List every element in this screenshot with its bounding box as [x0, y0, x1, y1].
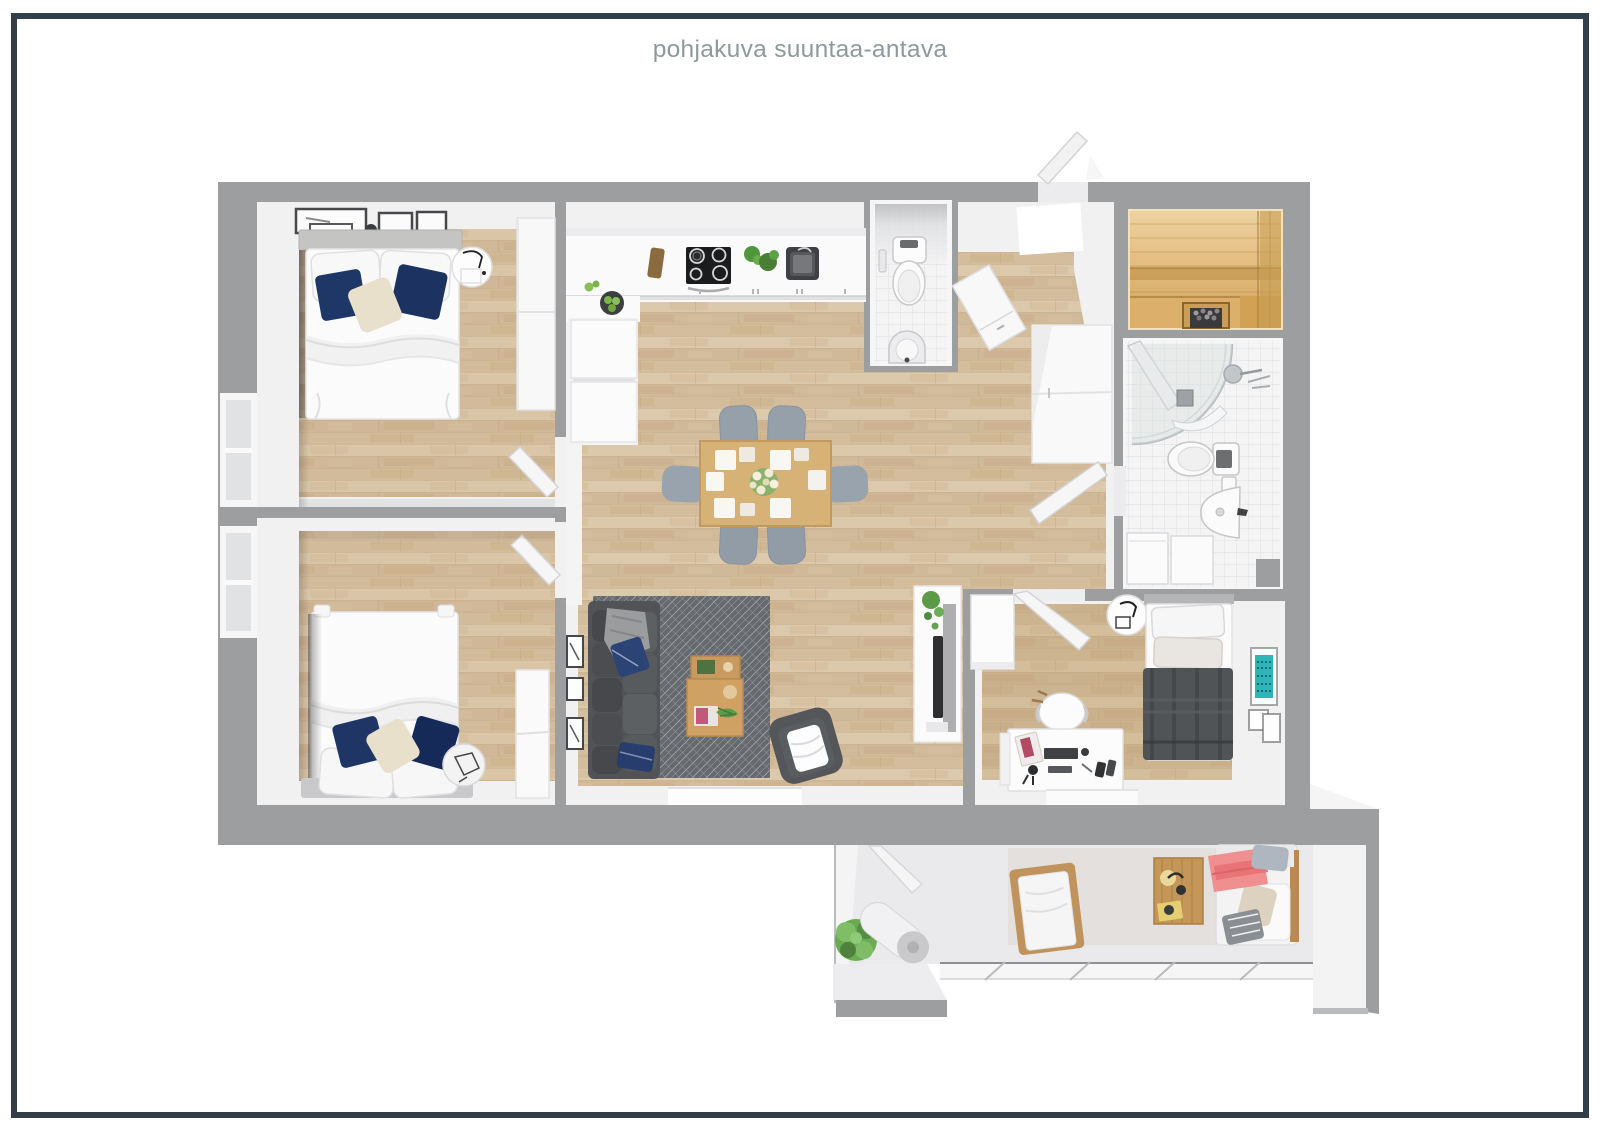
svg-text:pohjakuva suuntaa-antava: pohjakuva suuntaa-antava	[653, 36, 948, 63]
